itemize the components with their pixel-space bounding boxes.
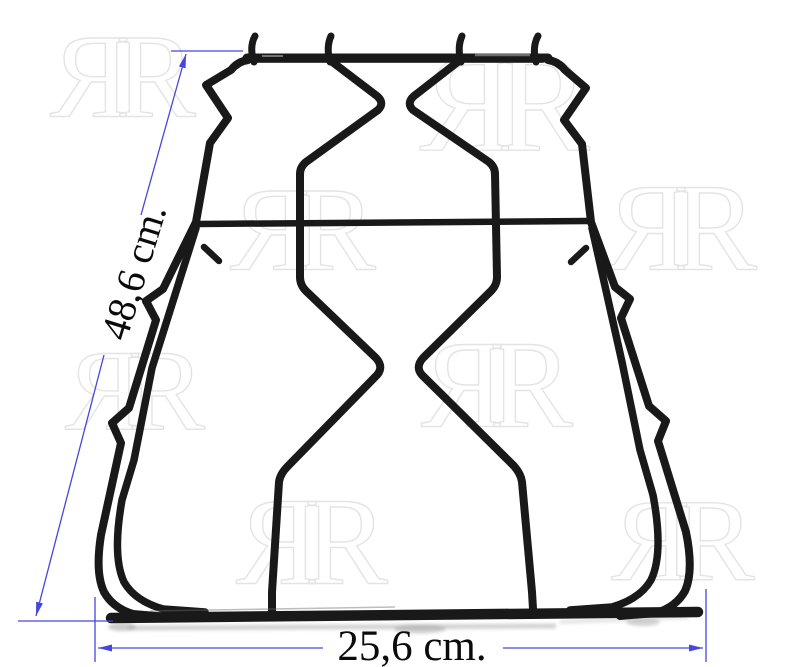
watermark: RR [605, 159, 758, 297]
watermark: RR [419, 26, 590, 181]
product-photo: RRRRRRRRRRRRRRRR [0, 0, 800, 667]
svg-text:R: R [674, 159, 758, 297]
prong-4 [534, 36, 538, 62]
svg-text:R: R [296, 163, 376, 296]
svg-text:R: R [116, 10, 196, 143]
watermark: RR [236, 473, 389, 611]
support-peg-left [204, 247, 219, 261]
width-dimension-label: 25,6 cm. [337, 623, 486, 667]
prong-1 [252, 36, 255, 62]
svg-text:R: R [305, 473, 389, 611]
cross-bar [198, 221, 588, 224]
prong-2 [328, 36, 331, 62]
prong-3 [459, 36, 462, 62]
pan-support-grid: RRRRRRRRRRRRRRRR [0, 0, 800, 667]
bottom-bar [111, 612, 698, 618]
support-peg-right [571, 248, 586, 262]
watermark: RR [50, 10, 196, 143]
svg-text:R: R [490, 316, 574, 454]
watermark-layer: RRRRRRRRRRRRRRRR [50, 10, 757, 612]
